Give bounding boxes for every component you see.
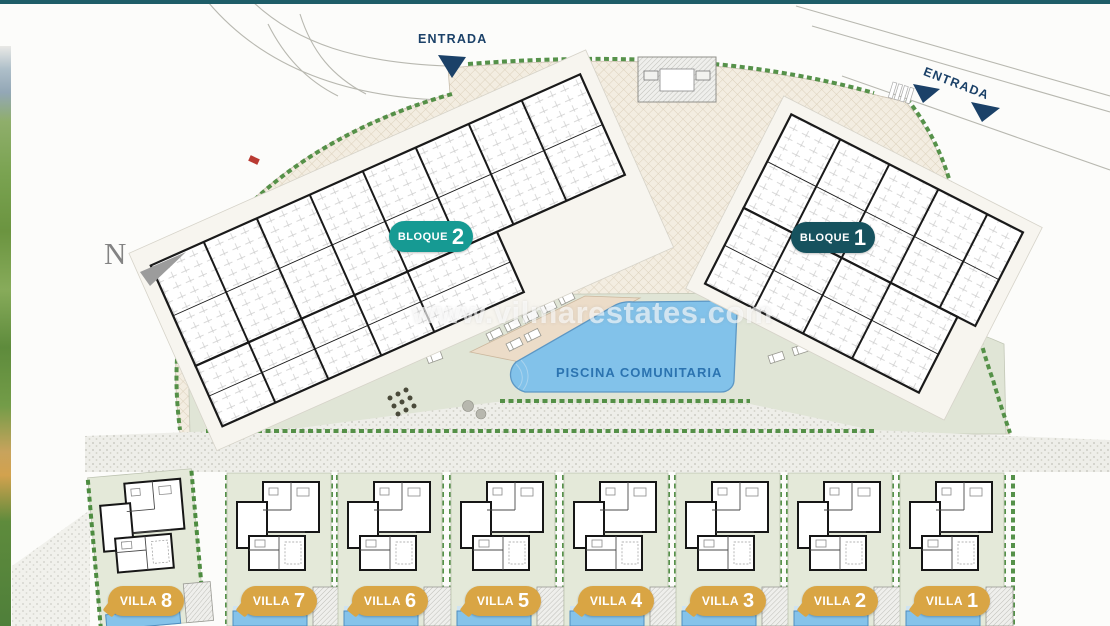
villa-6-badge: VILLA 6 xyxy=(352,586,428,616)
villa-word: VILLA xyxy=(926,594,963,608)
north-indicator: N xyxy=(104,236,126,272)
villa-number: 4 xyxy=(631,591,642,611)
gate-structure xyxy=(638,57,716,102)
hedge-red-marker xyxy=(248,155,260,165)
entrance-arrow-icon xyxy=(913,84,940,103)
villa-word: VILLA xyxy=(477,594,514,608)
bloque-1-badge: BLOQUE 1 xyxy=(791,222,875,253)
villa-number: 8 xyxy=(161,591,172,611)
pool-label: PISCINA COMUNITARIA xyxy=(556,365,722,380)
aerial-photo-strip xyxy=(0,46,11,626)
entrance-label-top: ENTRADA xyxy=(418,32,488,46)
villa-number: 2 xyxy=(855,591,866,611)
villa-word: VILLA xyxy=(364,594,401,608)
villa-word: VILLA xyxy=(814,594,851,608)
pedestrian-path-corner xyxy=(12,510,90,626)
villa-number: 3 xyxy=(743,591,754,611)
entrance-arrow-icon xyxy=(971,102,1000,122)
top-accent-bar xyxy=(0,0,1110,4)
villa-8-badge: VILLA 8 xyxy=(108,586,184,616)
access-road-curves xyxy=(208,2,446,100)
villa-number: 7 xyxy=(294,591,305,611)
villa-word: VILLA xyxy=(590,594,627,608)
villa-word: VILLA xyxy=(120,594,157,608)
villa-2-badge: VILLA 2 xyxy=(802,586,878,616)
villa-7-badge: VILLA 7 xyxy=(241,586,317,616)
bloque-1-number: 1 xyxy=(854,227,866,249)
watermark: www.vilmarestates.com xyxy=(412,295,773,331)
bloque-2-number: 2 xyxy=(452,226,464,248)
villa-word: VILLA xyxy=(702,594,739,608)
villa-5-badge: VILLA 5 xyxy=(465,586,541,616)
villa-1-badge: VILLA 1 xyxy=(914,586,990,616)
bloque-2-word: BLOQUE xyxy=(398,231,448,243)
villa-word: VILLA xyxy=(253,594,290,608)
villa-4-badge: VILLA 4 xyxy=(578,586,654,616)
bloque-2-badge: BLOQUE 2 xyxy=(389,221,473,252)
villa-3-badge: VILLA 3 xyxy=(690,586,766,616)
villa-number: 6 xyxy=(405,591,416,611)
villa-number: 5 xyxy=(518,591,529,611)
site-plan-image: ENTRADA ENTRADA N BLOQUE 2 BLOQUE 1 PISC… xyxy=(0,0,1110,626)
bloque-1-word: BLOQUE xyxy=(800,232,850,244)
villa-number: 1 xyxy=(967,591,978,611)
